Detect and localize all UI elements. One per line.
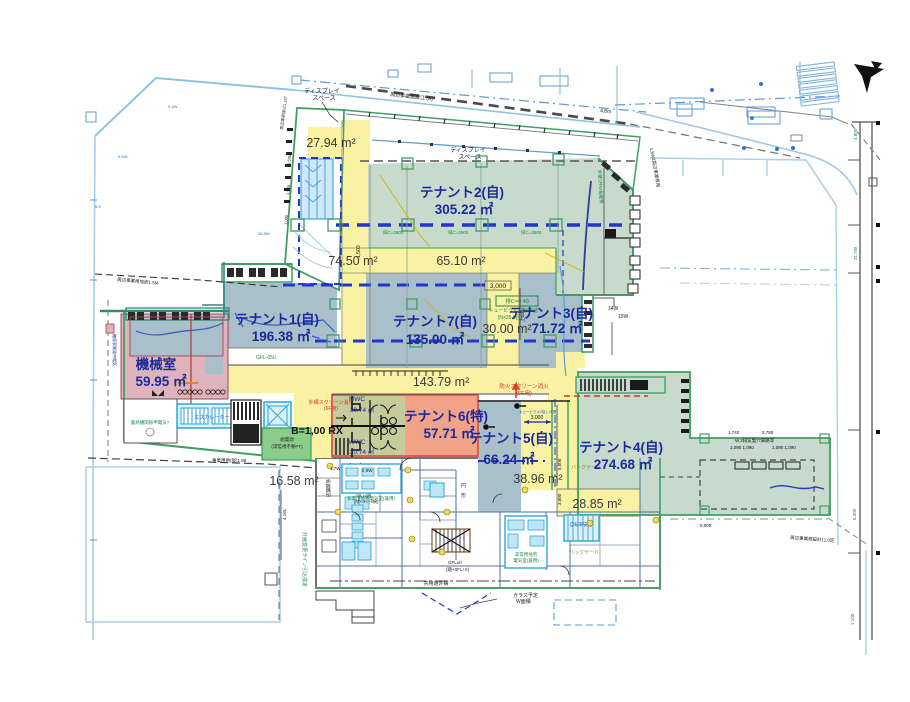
svg-text:4,800: 4,800 [853,128,858,140]
svg-text:5,000: 5,000 [700,523,712,528]
svg-text:排C=2900: 排C=2900 [383,229,404,236]
svg-text:W.3排気豎穴車路等: W.3排気豎穴車路等 [735,437,775,444]
svg-text:非常用他宅: 非常用他宅 [515,551,538,558]
svg-text:1,090 1,090: 1,090 1,090 [730,445,754,450]
svg-text:1,7W: 1,7W [330,466,341,471]
svg-text:65.10 m²: 65.10 m² [436,254,485,268]
svg-text:27.94 m²: 27.94 m² [306,136,355,150]
svg-text:テナント6(特): テナント6(特) [404,408,488,424]
svg-text:30.74 ㎡: 30.74 ㎡ [350,405,375,414]
svg-text:1,090 1,090: 1,090 1,090 [772,445,796,450]
svg-text:31,7W: 31,7W [853,246,858,260]
svg-text:57.71 ㎡: 57.71 ㎡ [423,425,475,441]
svg-text:電気室(兼用): 電気室(兼用) [513,557,539,564]
svg-text:ディスプレイ: ディスプレイ [304,87,340,95]
svg-text:38-5W: 38-5W [258,231,270,236]
svg-text:排C=0 40: 排C=0 40 [505,297,528,305]
svg-text:(踏+0FL+0碗): (踏+0FL+0碗) [354,498,379,504]
svg-text:円: 円 [461,483,466,489]
svg-text:GFL±0: GFL±0 [448,560,462,565]
svg-text:3,000: 3,000 [531,415,544,421]
svg-text:排C=2900: 排C=2900 [521,229,542,236]
svg-text:バックヤード: バックヤード [569,550,599,556]
svg-text:防火スクリーン消火: 防火スクリーン消火 [499,382,549,390]
svg-text:3,000: 3,000 [557,493,562,505]
svg-text:共用通外構: 共用通外構 [423,580,448,587]
svg-text:GFL±0碗: GFL±0碗 [355,492,371,498]
svg-text:店舗関係: 店舗関係 [325,479,332,497]
svg-text:MWC: MWC [349,396,366,403]
svg-text:4,8m: 4,8m [600,108,612,115]
svg-text:(6F用): (6F用) [324,406,339,412]
svg-text:テナント7(自): テナント7(自) [393,313,477,329]
svg-text:5,500: 5,500 [557,458,562,470]
svg-text:(踏+0FL+0): (踏+0FL+0) [446,566,470,573]
svg-text:エスカレーター: エスカレーター [194,414,229,421]
svg-text:ディスプレイ: ディスプレイ [450,146,486,154]
svg-text:テナント3(自): テナント3(自) [509,305,593,321]
svg-text:キュービクル2話し25話: キュービクル2話し25話 [519,409,557,414]
svg-text:196.38 ㎡: 196.38 ㎡ [252,328,311,344]
svg-text:6,300: 6,300 [852,508,857,520]
svg-text:14W: 14W [608,306,619,312]
svg-text:2,9W: 2,9W [362,468,373,473]
svg-text:機械室: 機械室 [136,356,177,372]
svg-text:3,000: 3,000 [490,283,507,290]
svg-text:(常監視不要PT): (常監視不要PT) [271,443,303,450]
svg-text:28.85 m²: 28.85 m² [572,497,621,511]
svg-text:糖尿家開発中電気: 糖尿家開発中電気 [112,334,118,366]
svg-text:1,740: 1,740 [728,430,740,435]
svg-text:テナント4(自): テナント4(自) [579,439,663,455]
svg-text:テナント1(自): テナント1(自) [235,311,319,327]
svg-text:スペース: スペース [458,154,481,161]
svg-text:事業用地(仮)1,98: 事業用地(仮)1,98 [212,457,247,464]
svg-text:74.50 m²: 74.50 m² [328,254,377,268]
svg-text:16.58 m²: 16.58 m² [269,474,318,488]
svg-text:1,100: 1,100 [850,613,855,625]
svg-text:59.95 ㎡: 59.95 ㎡ [135,373,187,389]
svg-text:274.68 ㎡: 274.68 ㎡ [594,456,653,472]
svg-text:(6F用): (6F用) [516,390,532,397]
svg-text:W面積: W面積 [516,598,531,605]
svg-text:305.22 ㎡: 305.22 ㎡ [435,201,494,217]
svg-text:71.72 ㎡: 71.72 ㎡ [531,320,583,336]
svg-text:WWC: WWC [349,439,366,446]
svg-text:15W: 15W [618,314,629,320]
svg-text:30.00 m²: 30.00 m² [482,322,531,336]
svg-text:計画変更ライン引込提定: 計画変更ライン引込提定 [301,532,308,587]
svg-text:9-4W: 9-4W [168,104,178,109]
svg-text:9-5W: 9-5W [118,154,128,159]
svg-text:スペース: スペース [312,95,335,102]
svg-text:排C=2900: 排C=2900 [448,229,469,236]
svg-text:外構スクリーン消火: 外構スクリーン消火 [309,399,354,406]
svg-text:4,19L: 4,19L [282,508,287,520]
svg-text:ガラス予定: ガラス予定 [513,592,538,599]
svg-text:38.96 m²: 38.96 m² [513,472,562,486]
svg-text:テナント5(自): テナント5(自) [469,430,553,446]
svg-text:B=1,00 RX: B=1,00 RX [291,425,343,437]
svg-text:GFL-050: GFL-050 [256,355,276,361]
svg-text:テナント2(自): テナント2(自) [420,184,504,200]
svg-text:66.24 ㎡: 66.24 ㎡ [483,451,535,467]
svg-text:蓄熱槽関係申電気?: 蓄熱槽関係申電気? [131,419,170,426]
svg-text:30.74 ㎡: 30.74 ㎡ [350,447,375,456]
svg-text:形: 形 [461,492,466,499]
svg-text:2,780: 2,780 [762,430,774,435]
svg-text:143.79 m²: 143.79 m² [413,375,469,389]
svg-text:135.00 ㎡: 135.00 ㎡ [406,331,465,347]
svg-text:組電源: 組電源 [280,436,294,443]
svg-text:8-9: 8-9 [95,204,102,209]
